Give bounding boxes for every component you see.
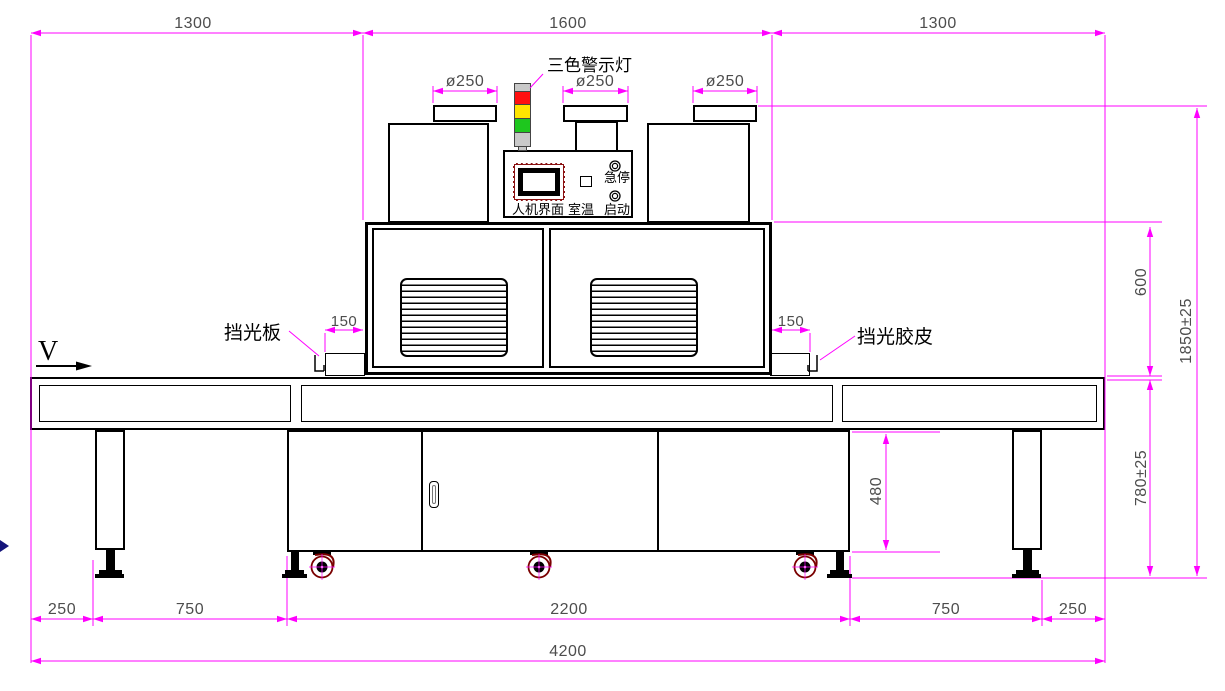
shade-rubber-bracket [808, 355, 817, 371]
hmi-label: 人机界面 [512, 203, 564, 218]
shade-rubber-leader [820, 336, 855, 360]
cursor-artifact [0, 540, 9, 552]
dim-label-table-height: 780±25 [1133, 450, 1150, 506]
foot-plate [830, 570, 849, 574]
dim-label-offset-right: 150 [778, 313, 805, 330]
dim-cap-diameters: ø250 ø250 ø250 [433, 73, 757, 94]
dim-label-cap-right: ø250 [706, 73, 744, 90]
direction-label: V [38, 336, 58, 367]
annotation-overlay: 1300 1600 1300 ø250 ø250 ø250 150 [0, 0, 1225, 691]
dim-shade-offsets: 150 150 [325, 313, 810, 333]
foot-plate [285, 570, 304, 574]
dim-top-chain: 1300 1600 1300 [31, 15, 1105, 36]
direction-arrow-head [76, 362, 92, 371]
leveling-feet [95, 549, 1041, 578]
warning-light-leader [530, 74, 543, 88]
foot-screw [106, 549, 115, 571]
foot-base [95, 574, 124, 578]
dim-bottom-chain: 250 750 2200 750 250 [31, 601, 1105, 622]
dim-label-cabinet-height: 480 [868, 477, 885, 505]
foot-base [282, 574, 307, 578]
caster-right [792, 551, 818, 580]
control-panel-details: 人机界面 室温 急停 启动 [512, 161, 630, 218]
foot-screw [291, 552, 299, 571]
cad-drawing-uv-conveyor-machine: 1300 1600 1300 ø250 ø250 ø250 150 [0, 0, 1225, 691]
foot-base [827, 574, 852, 578]
start-button-inner [612, 193, 617, 198]
caster-left [309, 551, 335, 580]
room-temp-label: 室温 [568, 202, 594, 218]
dim-label-overall-height: 1850±25 [1178, 298, 1195, 364]
dim-label-oven-height: 600 [1133, 268, 1150, 296]
dim-label-bottom-2: 750 [176, 601, 204, 618]
shade-plate-leader [289, 331, 319, 356]
dim-label-bottom-1: 250 [48, 601, 76, 618]
emergency-stop-label: 急停 [604, 170, 630, 186]
foot-base [1012, 574, 1041, 578]
direction-marker: V [36, 336, 92, 371]
dim-label-bottom-5: 250 [1059, 601, 1087, 618]
shade-plate-label: 挡光板 [224, 322, 281, 344]
shade-plate-bracket [315, 355, 324, 371]
dim-overall-length: 4200 [31, 643, 1105, 664]
foot-screw [836, 552, 844, 571]
emergency-stop-button-inner [612, 163, 617, 168]
dim-label-offset-left: 150 [331, 313, 358, 330]
dim-label-top-left: 1300 [174, 15, 212, 32]
warning-light-label: 三色警示灯 [547, 56, 632, 76]
dim-label-bottom-4: 750 [932, 601, 960, 618]
start-label: 启动 [604, 203, 630, 218]
foot-plate [1016, 570, 1039, 574]
shade-rubber-label: 挡光胶皮 [857, 326, 933, 348]
dim-label-overall-length: 4200 [549, 643, 587, 660]
foot-plate [99, 570, 122, 574]
dim-label-cap-left: ø250 [446, 73, 484, 90]
dim-label-bottom-3: 2200 [550, 601, 588, 618]
dim-label-top-center: 1600 [549, 15, 587, 32]
dim-label-top-right: 1300 [919, 15, 957, 32]
foot-screw [1023, 549, 1032, 571]
caster-middle [526, 551, 552, 580]
